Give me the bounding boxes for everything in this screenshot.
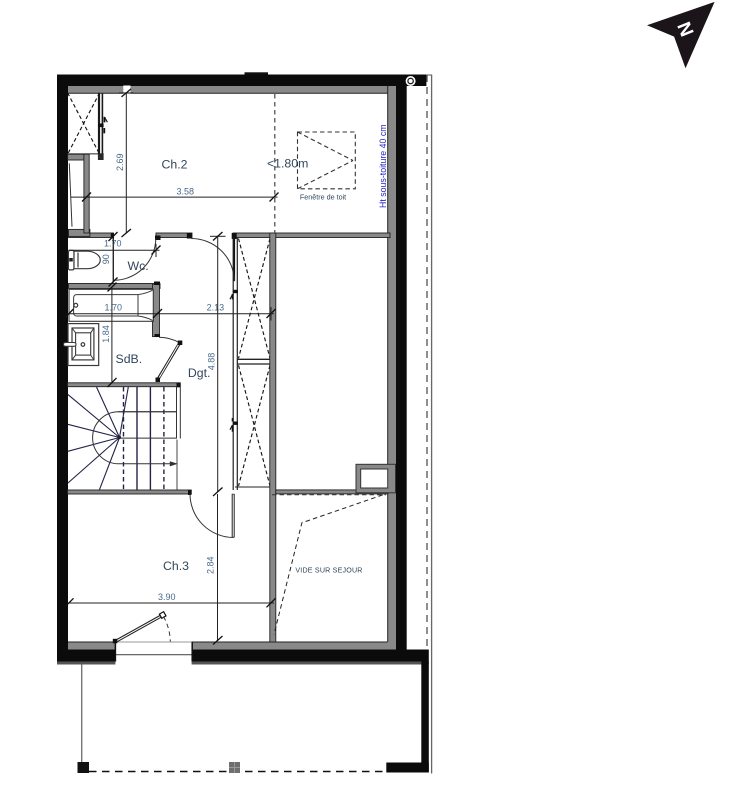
svg-text:1.70: 1.70 [105,303,123,313]
svg-text:2.84: 2.84 [205,556,215,574]
svg-text:3.90: 3.90 [158,592,176,602]
svg-text:90: 90 [101,254,111,264]
svg-text:Dgt.: Dgt. [188,366,211,380]
svg-text:Fenêtre de toit: Fenêtre de toit [300,193,346,202]
svg-text:2.69: 2.69 [115,153,125,171]
svg-text:1.84: 1.84 [101,325,111,343]
svg-text:Ch.2: Ch.2 [162,157,188,171]
svg-text:2.13: 2.13 [207,303,225,313]
svg-text:<1.80m: <1.80m [267,156,308,170]
svg-text:Wc.: Wc. [128,259,149,273]
svg-text:SdB.: SdB. [116,352,143,366]
svg-text:VIDE SUR SEJOUR: VIDE SUR SEJOUR [295,566,362,574]
svg-text:Ht sous-toiture 40 cm: Ht sous-toiture 40 cm [378,124,388,208]
svg-text:3.58: 3.58 [177,187,195,197]
svg-text:Ch.3: Ch.3 [163,559,189,573]
